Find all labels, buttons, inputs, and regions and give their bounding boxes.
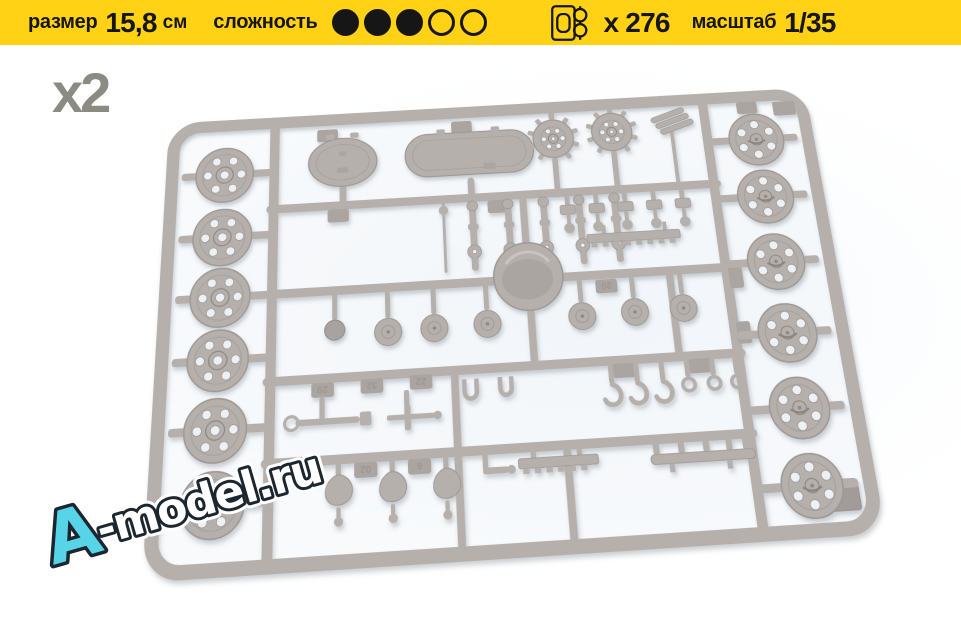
part-number-tab: 20	[601, 280, 612, 291]
parts-count: x 276	[604, 7, 670, 39]
product-photo: x2	[0, 45, 961, 635]
part-number-tab: 22	[415, 376, 426, 387]
size-value: 15,8	[105, 7, 156, 39]
part-number-tab: 29	[317, 384, 328, 396]
difficulty-dots	[332, 9, 492, 36]
size-unit: см	[163, 12, 188, 34]
difficulty-dot	[332, 9, 359, 36]
difficulty-dot	[428, 9, 455, 36]
size-label: размер	[28, 11, 97, 34]
difficulty-dot	[364, 9, 391, 36]
watermark: A -model.ru A -model.ru	[26, 417, 426, 607]
scale-label: масштаб	[692, 11, 777, 34]
scale-value: 1/35	[784, 7, 835, 39]
difficulty-label: сложность	[213, 11, 317, 34]
info-bar: размер 15,8 см сложность x 276 масштаб 1…	[0, 0, 961, 45]
product-card: размер 15,8 см сложность x 276 масштаб 1…	[0, 0, 961, 635]
difficulty-dot	[460, 9, 487, 36]
difficulty-dot	[396, 9, 423, 36]
watermark-suffix: -model.ru	[90, 443, 327, 556]
quantity-label: x2	[52, 65, 108, 121]
part-number-tab: 32	[366, 380, 377, 391]
sprue-icon	[548, 4, 590, 42]
